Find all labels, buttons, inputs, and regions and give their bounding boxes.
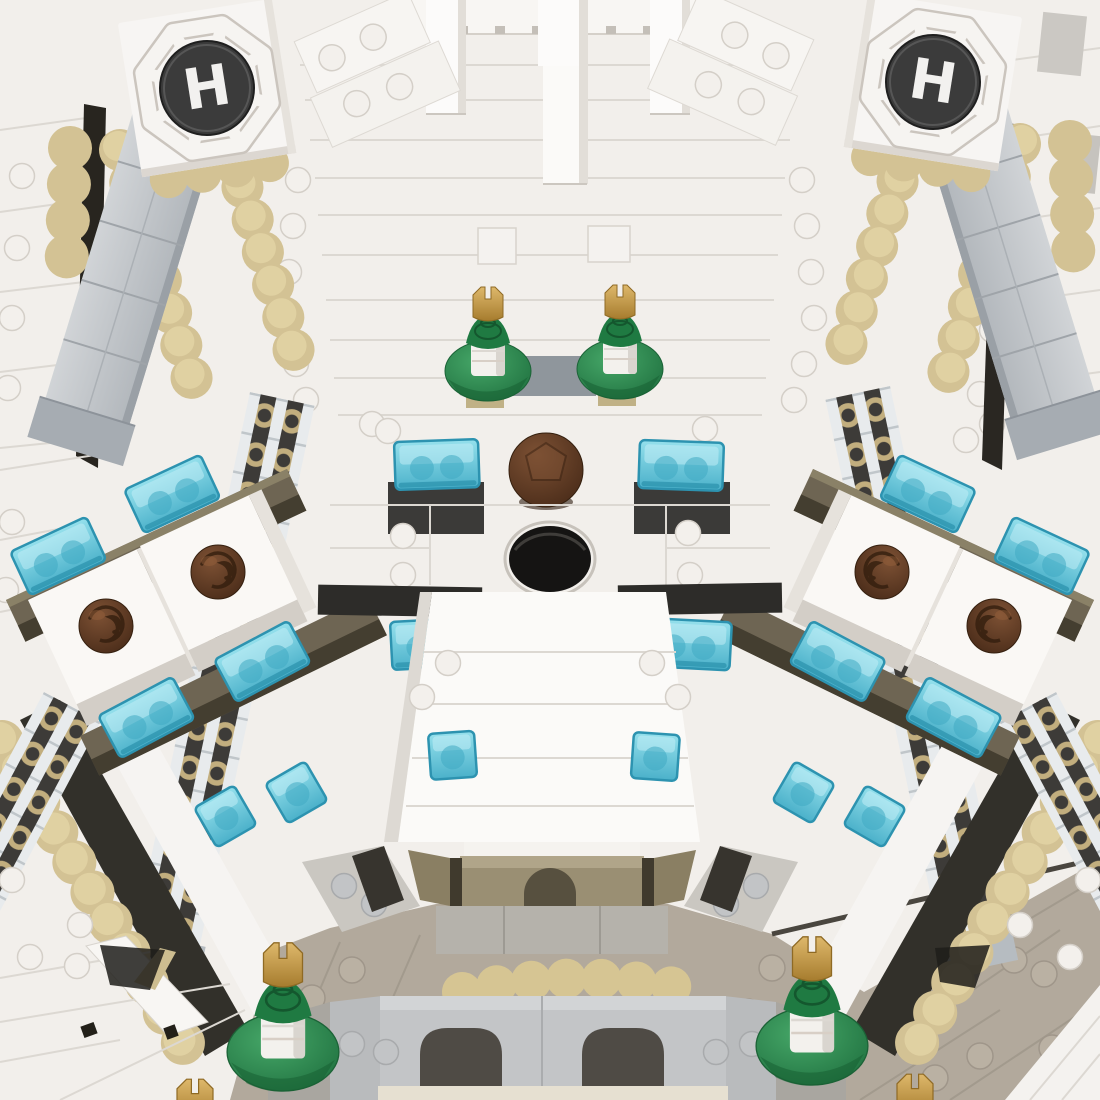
trans-blue-tile bbox=[394, 439, 480, 490]
center-hole bbox=[509, 526, 591, 592]
trans-blue-tile bbox=[631, 732, 680, 781]
helipad-left: H bbox=[179, 52, 235, 124]
lego-model-render: H H bbox=[0, 0, 1100, 1100]
trans-blue-tile bbox=[428, 731, 477, 780]
gray-tile bbox=[1037, 12, 1087, 76]
helipad-h-right: H bbox=[905, 46, 961, 118]
trans-blue-tile bbox=[638, 440, 724, 491]
wall-tab bbox=[588, 226, 630, 262]
scallop-row bbox=[462, 978, 690, 992]
wall-tab bbox=[478, 228, 516, 264]
central-walkway bbox=[398, 592, 700, 842]
helipad-right: H bbox=[905, 46, 961, 118]
helipad-h-left: H bbox=[179, 52, 235, 124]
lego-render-stage: H H bbox=[0, 0, 1100, 1100]
